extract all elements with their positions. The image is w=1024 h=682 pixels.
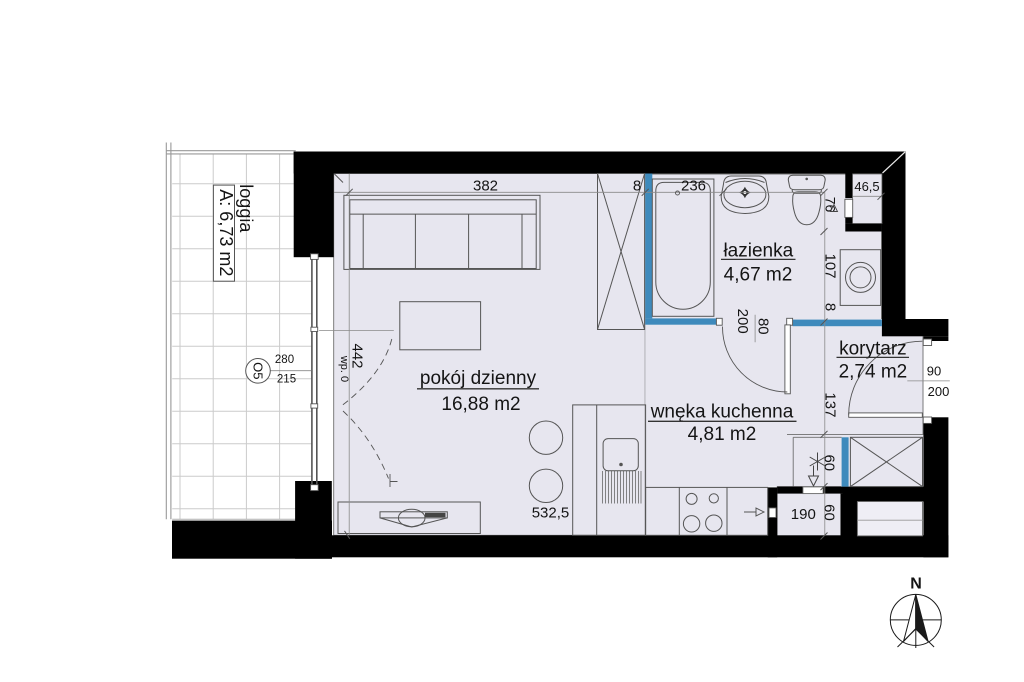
svg-text:A: 6,73 m2: A: 6,73 m2 — [216, 189, 236, 276]
svg-text:60: 60 — [821, 504, 838, 521]
svg-text:76: 76 — [822, 197, 838, 213]
svg-text:236: 236 — [681, 178, 706, 195]
svg-text:łazienka: łazienka — [723, 241, 793, 262]
svg-text:8: 8 — [633, 178, 641, 195]
svg-text:60: 60 — [821, 454, 838, 471]
svg-text:280: 280 — [275, 354, 294, 366]
svg-text:4,67 m2: 4,67 m2 — [724, 264, 793, 285]
svg-text:16,88 m2: 16,88 m2 — [441, 394, 520, 415]
svg-text:382: 382 — [473, 178, 498, 195]
svg-text:4,81 m2: 4,81 m2 — [688, 424, 757, 445]
svg-text:wnęka kuchenna: wnęka kuchenna — [650, 402, 794, 423]
svg-text:korytarz: korytarz — [839, 339, 907, 360]
svg-text:442: 442 — [349, 343, 366, 368]
svg-text:46,5: 46,5 — [854, 179, 879, 194]
svg-text:wp. 0: wp. 0 — [338, 355, 350, 382]
svg-text:80: 80 — [755, 318, 772, 335]
svg-text:loggia: loggia — [236, 184, 256, 233]
svg-text:8: 8 — [821, 303, 838, 311]
svg-text:N: N — [910, 576, 922, 593]
svg-text:532,5: 532,5 — [532, 505, 570, 522]
svg-text:200: 200 — [928, 384, 950, 399]
svg-text:2,74 m2: 2,74 m2 — [839, 361, 908, 382]
svg-text:107: 107 — [821, 253, 838, 278]
svg-text:190: 190 — [791, 506, 816, 523]
svg-text:137: 137 — [821, 392, 838, 417]
svg-text:pokój dzienny: pokój dzienny — [420, 368, 537, 389]
svg-text:90: 90 — [927, 364, 941, 379]
svg-text:O5: O5 — [251, 362, 266, 379]
svg-text:200: 200 — [734, 309, 751, 334]
svg-text:215: 215 — [277, 374, 296, 386]
